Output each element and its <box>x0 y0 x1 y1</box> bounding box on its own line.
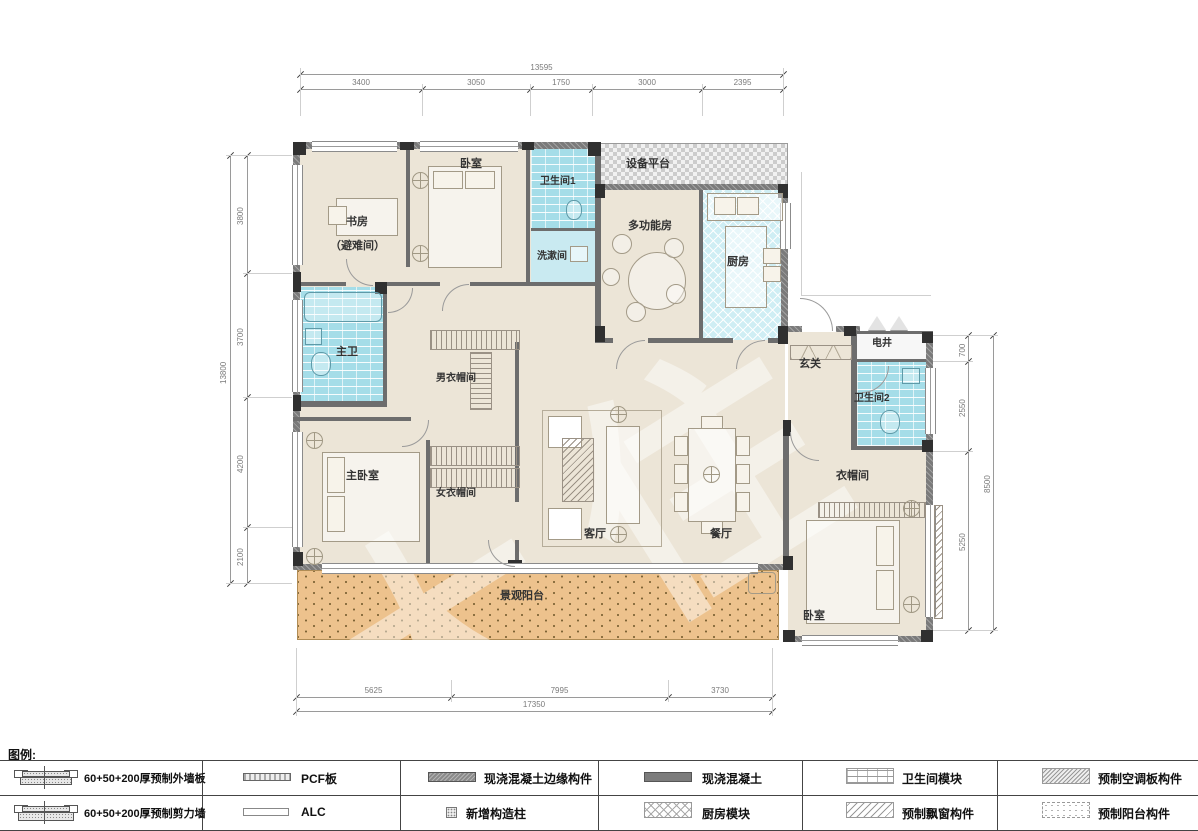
wall-multi-bottom-b <box>648 338 733 343</box>
wall-multi-kitchen <box>699 190 703 340</box>
dim-ext <box>772 648 773 716</box>
room-label-dining: 餐厅 <box>710 528 732 541</box>
legend-label-bathroom-module: 卫生间模块 <box>902 770 962 787</box>
dim-ext <box>300 68 301 116</box>
dim-right-seg-1: 2550 <box>958 399 967 417</box>
wall-equip-bottom <box>595 184 788 190</box>
room-label-study-sub: （避难间） <box>330 240 385 253</box>
multi-seat <box>602 268 620 286</box>
column-block <box>595 326 605 342</box>
legend-border <box>997 760 998 831</box>
room-label-living: 客厅 <box>584 528 606 541</box>
wall-row-h1a <box>300 282 346 286</box>
legend-symbol-precast-exterior-wall <box>14 766 78 789</box>
nightstand-lamp <box>412 172 429 189</box>
wall-dining-right <box>783 426 789 570</box>
legend-symbol-precast-ac-panel <box>1042 768 1090 784</box>
wall-shaft-top <box>851 331 933 334</box>
boundary-line-h <box>801 295 931 296</box>
legend-symbol-pcf-panel <box>243 773 291 781</box>
dim-left-seg-2: 4200 <box>236 455 245 473</box>
room-label-bedroom-br: 卧室 <box>803 610 825 623</box>
dim-ext <box>243 273 292 274</box>
column-block <box>783 556 793 570</box>
legend-border <box>598 760 599 831</box>
womens-wardrobe <box>430 468 520 488</box>
legend-border <box>0 760 1198 761</box>
dim-bottom-seg-2: 3730 <box>668 686 772 695</box>
legend-symbol-cast-in-place-concrete <box>644 772 692 782</box>
column-block <box>588 142 601 156</box>
mbath-tub <box>304 292 382 322</box>
wall-bath2-bottom <box>857 446 926 450</box>
wall-bed-bath1 <box>526 149 530 283</box>
legend-symbol-new-structural-column <box>446 807 457 818</box>
living-coffee-table <box>562 438 594 502</box>
legend-border <box>400 760 401 831</box>
room-label-womens-closet: 女衣帽间 <box>436 488 476 500</box>
dim-ext <box>592 84 593 116</box>
window-mbath-left <box>292 300 303 392</box>
womens-wardrobe <box>430 446 520 466</box>
room-label-equipment: 设备平台 <box>626 158 670 171</box>
legend-label-cast-in-place-edge: 现浇混凝土边缘构件 <box>484 770 592 787</box>
legend-label-precast-balcony: 预制阳台构件 <box>1098 805 1170 822</box>
dim-line <box>300 89 783 90</box>
window-study-left <box>292 165 303 265</box>
multi-seat <box>664 238 684 258</box>
dim-top-seg-3: 3000 <box>592 78 702 87</box>
master-bed-pillow <box>327 457 345 493</box>
column-block <box>522 142 534 150</box>
dim-ext <box>226 155 292 156</box>
bed-br-pillow <box>876 570 894 610</box>
wall-row-h1c <box>470 282 595 286</box>
legend-label-precast-bay-window: 预制飘窗构件 <box>902 805 974 822</box>
dim-ext <box>668 680 669 702</box>
legend-label-pcf-panel: PCF板 <box>301 770 337 787</box>
dim-top-overall: 13595 <box>300 63 783 72</box>
dim-right-seg-0: 700 <box>958 344 967 357</box>
dim-ext <box>933 335 998 336</box>
dim-line <box>968 335 969 630</box>
wall-topleft-inner-right <box>595 142 601 342</box>
legend-symbol-precast-shear-wall <box>14 801 78 824</box>
legend-label-precast-shear-wall: 60+50+200厚预制剪力墙 <box>84 805 206 821</box>
dim-bottom-overall: 17350 <box>296 700 772 709</box>
dim-ext <box>933 630 998 631</box>
room-label-foyer: 玄关 <box>799 358 821 371</box>
mens-wardrobe <box>430 330 520 350</box>
room-label-shaft: 电井 <box>872 338 892 350</box>
dining-chair <box>674 464 688 484</box>
room-label-study: 书房 <box>346 216 368 229</box>
dim-ext <box>933 361 973 362</box>
kitchen-sink <box>714 197 736 215</box>
legend-symbol-bathroom-module <box>846 768 894 784</box>
legend-label-precast-ac-panel: 预制空调板构件 <box>1098 770 1182 787</box>
dining-chair <box>736 492 750 512</box>
column-block <box>595 184 605 198</box>
multi-seat <box>666 284 686 304</box>
bed-top-pillow <box>433 171 463 189</box>
living-side-table <box>610 406 627 423</box>
dining-chair <box>736 436 750 456</box>
living-side-table <box>610 526 627 543</box>
window-study-top <box>312 141 397 152</box>
dim-bottom-seg-0: 5625 <box>296 686 451 695</box>
floor-plan-canvas: 大住 <box>0 0 1198 831</box>
nightstand-lamp <box>306 432 323 449</box>
dim-ext <box>530 84 531 116</box>
washroom-sink <box>570 246 588 262</box>
dim-ext <box>702 84 703 116</box>
dining-chair <box>736 464 750 484</box>
dining-chair <box>701 416 723 429</box>
window-balcony-doors <box>322 563 758 574</box>
legend-border <box>802 760 803 831</box>
dim-line <box>300 74 783 75</box>
column-block <box>922 332 933 343</box>
dim-right-seg-2: 5250 <box>958 533 967 551</box>
dim-bottom-seg-1: 7995 <box>451 686 668 695</box>
legend-symbol-precast-balcony <box>1042 802 1090 818</box>
dim-line <box>230 155 231 583</box>
balcony-area <box>297 570 779 640</box>
legend-label-kitchen-module: 厨房模块 <box>702 805 750 822</box>
window-bed-top <box>420 141 518 152</box>
bath1-toilet <box>566 200 582 220</box>
wall-mbr-top <box>293 417 411 421</box>
multi-seat <box>626 302 646 322</box>
door-entry <box>800 298 833 331</box>
legend-symbol-kitchen-module <box>644 802 692 818</box>
wall-shaft-bottom <box>857 359 926 362</box>
column-block <box>400 142 414 150</box>
dim-top-seg-4: 2395 <box>702 78 783 87</box>
wall-mbath-right <box>383 286 387 403</box>
nightstand-lamp <box>306 548 323 565</box>
kitchen-sink <box>737 197 759 215</box>
column-block <box>783 630 795 642</box>
living-armchair <box>548 508 582 540</box>
kitchen-appliance <box>763 266 781 282</box>
dim-line <box>296 697 772 698</box>
column-block <box>922 440 933 452</box>
dim-ext <box>243 397 292 398</box>
room-label-bath1: 卫生间1 <box>540 176 576 188</box>
kitchen-appliance <box>763 248 781 264</box>
column-block <box>921 630 933 642</box>
legend-symbol-cast-in-place-edge <box>428 772 476 782</box>
column-block <box>844 326 856 336</box>
column-block <box>293 395 301 411</box>
balcony-planter <box>748 572 776 594</box>
mbath-sink <box>305 328 322 345</box>
bed-top-pillow <box>465 171 495 189</box>
dim-right-overall: 8500 <box>983 475 992 493</box>
window-mbr-left <box>292 432 303 547</box>
bath1-module <box>531 149 595 229</box>
shaft-vent-icon <box>890 316 908 330</box>
dim-line <box>247 155 248 583</box>
dining-chair <box>674 492 688 512</box>
room-label-closet: 衣帽间 <box>836 470 869 483</box>
legend-label-precast-exterior-wall: 60+50+200厚预制外墙板 <box>84 770 206 786</box>
bath2-toilet <box>880 410 900 434</box>
dim-left-seg-3: 2100 <box>236 548 245 566</box>
dim-ext <box>422 84 423 116</box>
legend-label-alc-panel: ALC <box>301 805 326 819</box>
legend-symbol-precast-bay-window <box>846 802 894 818</box>
dim-ext <box>933 451 973 452</box>
dim-top-seg-1: 3050 <box>422 78 530 87</box>
bath2-sink <box>902 368 920 384</box>
master-bed-pillow <box>327 496 345 532</box>
room-label-multifunction: 多功能房 <box>628 220 672 233</box>
mbath-toilet <box>311 352 331 376</box>
legend-label-new-structural-column: 新增构造柱 <box>466 805 526 822</box>
dim-left-seg-0: 3800 <box>236 207 245 225</box>
dim-top-seg-2: 1750 <box>530 78 592 87</box>
room-label-master-bedroom: 主卧室 <box>346 470 379 483</box>
window-bath2-right <box>925 368 936 434</box>
dim-ext <box>451 680 452 702</box>
nightstand-lamp <box>903 500 920 517</box>
wall-mbath-bottom <box>293 401 387 407</box>
dining-chair <box>674 436 688 456</box>
dim-line <box>296 711 772 712</box>
window-br-bottom <box>802 635 898 646</box>
dim-ext <box>296 648 297 716</box>
room-label-balcony: 景观阳台 <box>500 590 544 603</box>
room-label-kitchen: 厨房 <box>727 256 749 269</box>
room-label-bath2: 卫生间2 <box>854 393 890 405</box>
dim-ext <box>226 583 292 584</box>
multi-seat <box>612 234 632 254</box>
study-chair <box>328 206 347 225</box>
nightstand-lamp <box>903 596 920 613</box>
boundary-line-v <box>801 172 802 296</box>
room-label-bedroom-top: 卧室 <box>460 158 482 171</box>
dim-ext <box>243 527 292 528</box>
room-label-mens-closet: 男衣帽间 <box>436 373 476 385</box>
column-block <box>293 272 301 292</box>
shaft-vent-icon <box>868 316 886 330</box>
dim-line <box>993 335 994 630</box>
wall-study-bed <box>406 149 410 267</box>
column-block <box>293 552 303 566</box>
legend-border <box>0 795 1198 796</box>
legend-label-cast-in-place-concrete: 现浇混凝土 <box>702 770 762 787</box>
dining-centerpiece <box>703 466 720 483</box>
wall-row-h1b <box>378 282 440 286</box>
column-block <box>293 142 306 155</box>
room-label-washroom: 洗漱间 <box>537 251 567 263</box>
column-block <box>778 326 788 344</box>
dim-left-seg-1: 3700 <box>236 328 245 346</box>
wall-bath1-wash <box>531 228 595 231</box>
dim-left-overall: 13800 <box>219 362 228 384</box>
legend-symbol-alc-panel <box>243 808 289 816</box>
room-label-master-bath: 主卫 <box>336 346 358 359</box>
bed-br-pillow <box>876 526 894 566</box>
living-sofa <box>606 426 640 524</box>
dim-ext <box>783 68 784 116</box>
bay-window-precast <box>934 505 943 619</box>
dim-top-seg-0: 3400 <box>300 78 422 87</box>
nightstand-lamp <box>412 245 429 262</box>
